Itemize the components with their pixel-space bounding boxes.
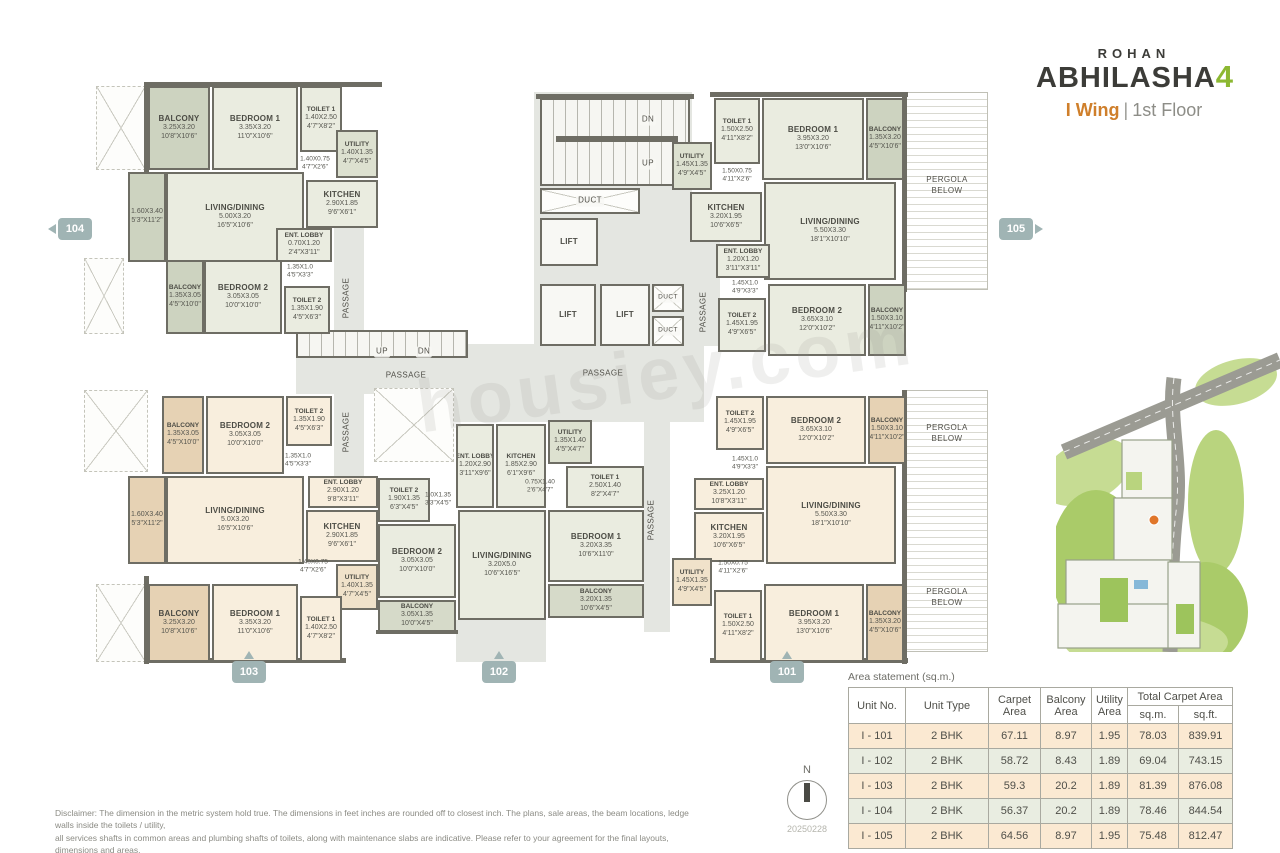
room-dim-feet: 9'8"X3'11": [327, 496, 358, 505]
plan-date: 20250228: [787, 824, 827, 834]
room-name: BALCONY: [159, 114, 200, 124]
table-cell: 2 BHK: [906, 724, 989, 749]
room-105-balcony-1: BALCONY1.35X3.204'5"X10'6": [866, 98, 904, 180]
room-name: BEDROOM 2: [791, 416, 841, 426]
room-dim-metric: 5.50X3.30: [814, 227, 846, 236]
room-name: TOILET 1: [723, 118, 751, 126]
room-dim-metric: 1.40X1.35: [341, 149, 373, 158]
room-dim-metric: 3.20X5.0: [488, 561, 516, 570]
room-dim-feet: 4'9"X4'5": [678, 586, 706, 595]
room-dim-feet: 18'1"X10'10": [811, 520, 851, 529]
room-dim-metric: 3.65X3.10: [801, 316, 833, 325]
room-105-bedroom-2: BEDROOM 23.65X3.1012'0"X10'2": [768, 284, 866, 356]
room-dim-feet: 10'8"X10'6": [161, 628, 197, 637]
room-dim-feet: 9'6"X6'1": [328, 209, 356, 218]
room-dim-metric: 5.00X3.20: [219, 213, 251, 222]
col-header-unit-no: Unit No.: [849, 688, 906, 724]
plan-label-up: UP: [374, 347, 390, 358]
room-102-living: LIVING/DINING3.20X5.010'6"X16'5": [458, 510, 546, 620]
room-name: TOILET 1: [591, 474, 619, 482]
room-name: LIVING/DINING: [472, 551, 532, 561]
zone-xbox: [374, 388, 454, 462]
dim-metric: 1.40X0.75: [298, 559, 328, 567]
plan-label-dn: DN: [640, 115, 656, 126]
room-name: TOILET 1: [724, 613, 752, 621]
room-name: UTILITY: [680, 153, 705, 161]
room-name: KITCHEN: [507, 453, 536, 461]
room-dim-feet: 11'0"X10'6": [237, 628, 272, 637]
room-dim-feet: 10'0"X4'5": [401, 620, 433, 629]
room-101-balcony-2: BALCONY1.50X3.104'11"X10'2": [868, 396, 906, 464]
room-102-utility: UTILITY1.35X1.404'5"X4'7": [548, 420, 592, 464]
room-105-toilet-1: TOILET 11.50X2.504'11"X8'2": [714, 98, 760, 164]
zone-xbox: [96, 584, 146, 662]
room-103-balcony-2: BALCONY1.35X3.054'5"X10'0": [162, 396, 204, 474]
room-dim-feet: 4'5"X10'0": [169, 301, 201, 310]
room-dim-feet: 8'2"X4'7": [591, 491, 619, 500]
room-102-bedroom-1: BEDROOM 13.20X3.3510'6"X11'0": [548, 510, 644, 582]
table-cell: 8.97: [1041, 724, 1092, 749]
room-dim-metric: 1.20X1.20: [727, 256, 759, 265]
room-104-balcony-1: BALCONY3.25X3.2010'8"X10'6": [148, 86, 210, 170]
room-103-bedroom-1: BEDROOM 13.35X3.2011'0"X10'6": [212, 584, 298, 662]
room-name: UTILITY: [680, 569, 705, 577]
room-name: TOILET 2: [293, 297, 321, 305]
room-dim-feet: 5'3"X11'2": [131, 217, 162, 226]
room-dim-metric: 3.05X3.05: [227, 293, 259, 302]
room-dim-metric: 2.50X1.40: [589, 482, 621, 491]
room-name: ENT. LOBBY: [710, 481, 749, 489]
room-lift-2: LIFT: [600, 284, 650, 346]
room-dim-metric: 1.50X3.10: [871, 315, 903, 324]
room-name: KITCHEN: [711, 523, 748, 533]
room-105-living: LIVING/DINING5.50X3.3018'1"X10'10": [764, 182, 896, 280]
plan-label-passage: PASSAGE: [647, 500, 658, 540]
table-cell: 743.15: [1179, 749, 1233, 774]
room-dim-metric: 1.35X3.05: [167, 430, 199, 439]
room-dim-feet: 13'0"X10'6": [795, 144, 831, 153]
room-dim-metric: 1.45X1.95: [724, 418, 756, 427]
table-row: I - 1032 BHK59.320.21.8981.39876.08: [849, 774, 1233, 799]
room-dim-metric: 3.25X3.20: [163, 619, 195, 628]
room-dim-metric: 1.90X1.35: [388, 495, 420, 504]
room-name: LIFT: [559, 310, 577, 320]
table-cell: 1.89: [1092, 774, 1128, 799]
room-dim-feet: 9'6"X6'1": [328, 541, 356, 550]
room-dim-metric: 1.35X3.05: [169, 292, 201, 301]
room-dim-metric: 3.20X1.35: [580, 596, 612, 605]
room-101-balcony-1: BALCONY1.35X3.204'5"X10'6": [866, 584, 904, 662]
room-102-balcony-left: BALCONY3.05X1.3510'0"X4'5": [378, 600, 456, 632]
room-dim-feet: 16'5"X10'6": [217, 222, 253, 231]
room-name: KITCHEN: [324, 522, 361, 532]
room-dim-feet: 10'6"X16'5": [484, 570, 520, 579]
room-102-toilet-1: TOILET 12.50X1.408'2"X4'7": [566, 466, 644, 508]
room-dim-feet: 2'4"X3'11": [288, 249, 319, 258]
dimension-label: 1.40X0.754'7"X2'6": [300, 156, 330, 173]
room-dim-feet: 4'11"X8'2": [722, 630, 753, 639]
table-cell: 2 BHK: [906, 799, 989, 824]
plan-label-up: UP: [640, 159, 656, 170]
table-cell: 839.91: [1179, 724, 1233, 749]
room-name: BALCONY: [167, 422, 199, 430]
room-104-utility: UTILITY1.40X1.354'7"X4'5": [336, 130, 378, 178]
dimension-label: 1.0X1.353'3"X4'5": [425, 492, 451, 509]
room-103-living: LIVING/DINING5.0X3.2016'5"X10'6": [166, 476, 304, 564]
north-label: N: [803, 764, 811, 776]
room-name: BEDROOM 1: [788, 125, 838, 135]
room-name: BALCONY: [169, 284, 201, 292]
room-name: LIVING/DINING: [205, 506, 265, 516]
dimension-label: 0.75X1.402'6"X4'7": [525, 479, 555, 496]
room-name: ENT. LOBBY: [324, 479, 363, 487]
room-101-utility: UTILITY1.45X1.354'9"X4'5": [672, 558, 712, 606]
room-name: BALCONY: [869, 610, 901, 618]
room-name: LIVING/DINING: [800, 217, 860, 227]
room-dim-feet: 4'11"X10'2": [869, 434, 904, 443]
room-dim-feet: 4'5"X4'7": [556, 446, 584, 455]
table-cell: 2 BHK: [906, 774, 989, 799]
room-dim-metric: 3.20X1.95: [713, 533, 745, 542]
dim-metric: 1.35X1.0: [287, 264, 313, 272]
room-105-bedroom-1: BEDROOM 13.95X3.2013'0"X10'6": [762, 98, 864, 180]
room-name: KITCHEN: [324, 190, 361, 200]
site-marker: [1149, 515, 1159, 525]
wing-floor-subtitle: I Wing|1st Floor: [1036, 100, 1232, 121]
room-104-ent-lobby: ENT. LOBBY0.70X1.202'4"X3'11": [276, 228, 332, 262]
table-cell: I - 101: [849, 724, 906, 749]
table-cell: 20.2: [1041, 774, 1092, 799]
table-cell: 2 BHK: [906, 749, 989, 774]
table-row: I - 1042 BHK56.3720.21.8978.46844.54: [849, 799, 1233, 824]
brand-line2: ABHILASHA4: [1036, 61, 1232, 94]
col-header-sqm: sq.m.: [1128, 706, 1179, 724]
plan-label-pergola: PERGOLA BELOW: [926, 175, 967, 197]
room-105-utility: UTILITY1.45X1.354'9"X4'5": [672, 142, 712, 190]
dim-feet: 3'3"X4'5": [425, 500, 451, 508]
dimension-label: 1.40X0.754'7"X2'6": [298, 559, 328, 576]
room-103-toilet-1: TOILET 11.40X2.504'7"X8'2": [300, 596, 342, 662]
room-dim-feet: 4'9"X6'5": [726, 427, 754, 436]
dim-feet: 4'11"X2'6": [722, 176, 752, 184]
table-cell: I - 105: [849, 824, 906, 849]
north-arrow-needle: [804, 783, 810, 802]
room-104-toilet-2: TOILET 21.35X1.904'5"X6'3": [284, 286, 330, 334]
room-dim-feet: 13'0"X10'6": [796, 628, 832, 637]
room-name: BEDROOM 1: [789, 609, 839, 619]
wall-segment: [556, 136, 678, 142]
room-name: UTILITY: [345, 574, 370, 582]
unit-badge-103: 103: [232, 661, 266, 683]
room-101-bedroom-2: BEDROOM 23.65X3.1012'0"X10'2": [766, 396, 866, 464]
room-dim-feet: 12'0"X10'2": [798, 435, 834, 444]
room-103-bedroom-2: BEDROOM 23.05X3.0510'0"X10'0": [206, 396, 284, 474]
wall-segment: [536, 94, 694, 99]
room-101-kitchen: KITCHEN3.20X1.9510'6"X6'5": [694, 512, 764, 562]
dimension-label: 1.35X1.04'5"X3'3": [287, 264, 313, 281]
table-cell: 56.37: [989, 799, 1041, 824]
area-table: Unit No. Unit Type Carpet Area Balcony A…: [848, 687, 1233, 849]
room-102-toilet-2: TOILET 21.90X1.356'3"X4'5": [378, 478, 430, 522]
table-cell: 78.03: [1128, 724, 1179, 749]
room-102-bedroom-2: BEDROOM 23.05X3.0510'0"X10'0": [378, 524, 456, 598]
room-104-bedroom-2: BEDROOM 23.05X3.0510'0"X10'0": [204, 260, 282, 334]
dim-metric: 1.35X1.0: [285, 453, 311, 461]
room-102-ent-lobby: ENT. LOBBY1.20X2.903'11"X9'6": [456, 424, 494, 508]
room-name: BEDROOM 1: [230, 114, 280, 124]
room-dim-feet: 12'0"X10'2": [799, 325, 835, 334]
room-dim-feet: 18'1"X10'10": [810, 236, 850, 245]
table-cell: 8.97: [1041, 824, 1092, 849]
room-dim-feet: 4'7"X4'5": [343, 158, 371, 167]
room-name: BEDROOM 2: [218, 283, 268, 293]
room-dim-metric: 3.35X3.20: [239, 619, 271, 628]
brand-logo: ROHAN ABHILASHA4 I Wing|1st Floor: [1036, 46, 1232, 121]
disclaimer-line2: all services shafts in common areas and …: [55, 833, 669, 853]
dim-feet: 4'11"X2'6": [718, 568, 748, 576]
dim-feet: 4'9"X3'3": [732, 464, 758, 472]
zone-xbox: [96, 86, 146, 170]
room-dim-metric: 1.35X1.90: [293, 416, 325, 425]
room-dim-metric: 1.35X3.20: [869, 134, 901, 143]
room-dim-feet: 4'7"X4'5": [343, 591, 371, 600]
room-dim-metric: 3.35X3.20: [239, 124, 271, 133]
table-row: I - 1052 BHK64.568.971.9575.48812.47: [849, 824, 1233, 849]
room-dim-metric: 1.40X2.50: [305, 624, 337, 633]
wall-segment: [710, 92, 908, 97]
room-101-bedroom-1: BEDROOM 13.95X3.2013'0"X10'6": [764, 584, 864, 662]
room-dim-feet: 3'11"X9'6": [459, 470, 490, 479]
table-cell: I - 103: [849, 774, 906, 799]
unit-badge-arrow-102: [494, 651, 504, 659]
room-dim-metric: 1.45X1.35: [676, 161, 708, 170]
room-dim-metric: 3.05X3.05: [401, 557, 433, 566]
table-cell: I - 104: [849, 799, 906, 824]
room-name: BALCONY: [869, 126, 901, 134]
room-dim-metric: 1.45X1.95: [726, 320, 758, 329]
room-name: TOILET 2: [726, 410, 754, 418]
room-105-ent-lobby: ENT. LOBBY1.20X1.203'11"X3'11": [716, 244, 770, 278]
room-dim-feet: 4'5"X6'3": [295, 425, 323, 434]
brand-line1: ROHAN: [1036, 46, 1232, 61]
zone-xbox: [84, 390, 148, 472]
plan-label-passage: PASSAGE: [342, 412, 353, 452]
plan-label-duct: DUCT: [576, 196, 604, 207]
room-105-toilet-2: TOILET 21.45X1.954'9"X6'5": [718, 298, 766, 352]
room-dim-metric: 1.40X1.35: [341, 582, 373, 591]
table-cell: 1.89: [1092, 749, 1128, 774]
room-name: BEDROOM 2: [220, 421, 270, 431]
room-name: ENT. LOBBY: [724, 248, 763, 256]
room-dim-metric: 2.90X1.85: [326, 532, 358, 541]
room-dim-metric: 1.35X1.90: [291, 305, 323, 314]
table-row: I - 1022 BHK58.728.431.8969.04743.15: [849, 749, 1233, 774]
room-dim-feet: 11'0"X10'6": [237, 133, 272, 142]
floor-label: 1st Floor: [1132, 100, 1202, 120]
room-104-bedroom-1: BEDROOM 13.35X3.2011'0"X10'6": [212, 86, 298, 170]
dim-feet: 2'6"X4'7": [525, 487, 555, 495]
room-dim-metric: 1.20X2.90: [459, 461, 491, 470]
room-105-kitchen: KITCHEN3.20X1.9510'6"X6'5": [690, 192, 762, 242]
room-dim-feet: 3'11"X3'11": [726, 265, 761, 274]
room-dim-feet: 10'8"X3'11": [711, 498, 746, 507]
unit-badge-arrow-104: [48, 224, 56, 234]
room-102-balcony-right: BALCONY3.20X1.3510'6"X4'5": [548, 584, 644, 618]
room-name: BEDROOM 2: [792, 306, 842, 316]
zone-gray: [452, 344, 704, 422]
plan-label-passage: PASSAGE: [342, 278, 353, 318]
table-cell: 75.48: [1128, 824, 1179, 849]
plan-label-pergola: PERGOLA BELOW: [926, 587, 967, 609]
room-dim-metric: 3.65X3.10: [800, 426, 832, 435]
col-header-sqft: sq.ft.: [1179, 706, 1233, 724]
room-dim-metric: 3.95X3.20: [798, 619, 830, 628]
table-cell: 59.3: [989, 774, 1041, 799]
col-header-total-carpet-area: Total Carpet Area: [1128, 688, 1233, 706]
col-header-balcony-area: Balcony Area: [1041, 688, 1092, 724]
wing-label: I Wing: [1066, 100, 1120, 120]
room-dim-metric: 3.95X3.20: [797, 135, 829, 144]
room-dim-feet: 4'11"X8'2": [721, 135, 752, 144]
room-dim-feet: 10'0"X10'0": [399, 566, 435, 575]
room-name: LIFT: [616, 310, 634, 320]
room-dim-metric: 1.50X3.10: [871, 425, 903, 434]
table-cell: 20.2: [1041, 799, 1092, 824]
room-name: ENT. LOBBY: [456, 453, 494, 461]
plan-label-passage: PASSAGE: [386, 371, 426, 382]
room-dim-feet: 4'9"X4'5": [678, 170, 706, 179]
plan-label-dn: DN: [416, 347, 432, 358]
dim-metric: 1.45X1.0: [732, 280, 758, 288]
plan-label-duct: DUCT: [656, 294, 680, 303]
room-dim-feet: 10'6"X6'5": [710, 222, 742, 231]
col-header-carpet-area: Carpet Area: [989, 688, 1041, 724]
dim-metric: 1.40X0.75: [300, 156, 330, 164]
room-lift-1: LIFT: [540, 284, 596, 346]
room-name: TOILET 1: [307, 106, 335, 114]
room-dim-feet: 6'1"X9'6": [507, 470, 535, 479]
table-cell: 812.47: [1179, 824, 1233, 849]
room-name: BEDROOM 2: [392, 547, 442, 557]
room-dim-feet: 16'5"X10'6": [217, 525, 253, 534]
dimension-label: 1.45X1.04'9"X3'3": [732, 280, 758, 297]
room-dim-feet: 10'6"X4'5": [580, 605, 612, 614]
room-104-balcony-2: BALCONY1.35X3.054'5"X10'0": [166, 260, 204, 334]
room-name: UTILITY: [345, 141, 370, 149]
room-dim-metric: 3.25X1.20: [713, 489, 745, 498]
dim-feet: 4'5"X3'3": [285, 461, 311, 469]
room-dim-feet: 4'11"X10'2": [869, 324, 904, 333]
room-105-balcony-2: BALCONY1.50X3.104'11"X10'2": [868, 284, 906, 356]
room-dim-metric: 1.85X2.90: [505, 461, 537, 470]
dimension-label: 1.45X1.04'9"X3'3": [732, 456, 758, 473]
room-name: BALCONY: [871, 417, 903, 425]
room-dim-feet: 4'7"X8'2": [307, 123, 335, 132]
room-101-living: LIVING/DINING5.50X3.3018'1"X10'10": [766, 466, 896, 564]
room-name: UTILITY: [558, 429, 583, 437]
room-dim-feet: 10'8"X10'6": [161, 133, 197, 142]
room-dim-feet: 4'7"X8'2": [307, 633, 335, 642]
room-103-toilet-2: TOILET 21.35X1.904'5"X6'3": [286, 396, 332, 446]
room-103-balcony-1: BALCONY3.25X3.2010'8"X10'6": [148, 584, 210, 662]
dimension-label: 1.50X0.754'11"X2'6": [718, 560, 748, 577]
room-dim-metric: 2.90X1.85: [326, 200, 358, 209]
table-cell: 81.39: [1128, 774, 1179, 799]
plan-label-duct: DUCT: [656, 327, 680, 336]
room-103-deck: 1.60X3.405'3"X11'2": [128, 476, 166, 564]
zone-stairs: [540, 98, 690, 186]
area-statement-title: Area statement (sq.m.): [848, 671, 955, 683]
room-dim-metric: 3.25X3.20: [163, 124, 195, 133]
unit-badge-arrow-103: [244, 651, 254, 659]
room-dim-metric: 1.35X3.20: [869, 618, 901, 627]
dim-feet: 4'7"X2'6": [300, 164, 330, 172]
room-name: BALCONY: [159, 609, 200, 619]
room-name: BALCONY: [871, 307, 903, 315]
dimension-label: 1.50X0.754'11"X2'6": [722, 168, 752, 185]
room-dim-metric: 3.05X1.35: [401, 611, 433, 620]
unit-badge-102: 102: [482, 661, 516, 683]
room-dim-feet: 10'0"X10'0": [227, 440, 263, 449]
col-header-utility-area: Utility Area: [1092, 688, 1128, 724]
table-cell: 1.95: [1092, 824, 1128, 849]
room-name: BALCONY: [401, 603, 433, 611]
room-name: TOILET 1: [307, 616, 335, 624]
room-dim-feet: 4'5"X6'3": [293, 314, 321, 323]
table-row: I - 1012 BHK67.118.971.9578.03839.91: [849, 724, 1233, 749]
room-name: LIFT: [560, 237, 578, 247]
table-cell: I - 102: [849, 749, 906, 774]
room-name: BEDROOM 1: [571, 532, 621, 542]
room-101-toilet-1: TOILET 11.50X2.504'11"X8'2": [714, 590, 762, 662]
room-dim-feet: 10'6"X11'0": [578, 551, 613, 560]
room-name: TOILET 2: [728, 312, 756, 320]
room-104-kitchen: KITCHEN2.90X1.859'6"X6'1": [306, 180, 378, 228]
dim-metric: 1.0X1.35: [425, 492, 451, 500]
dim-metric: 1.45X1.0: [732, 456, 758, 464]
plan-label-pergola: PERGOLA BELOW: [926, 423, 967, 445]
room-name: LIVING/DINING: [801, 501, 861, 511]
room-dim-metric: 1.60X3.40: [131, 208, 163, 217]
room-101-ent-lobby: ENT. LOBBY3.25X1.2010'8"X3'11": [694, 478, 764, 510]
table-cell: 1.95: [1092, 724, 1128, 749]
room-dim-feet: 4'5"X10'6": [869, 627, 901, 636]
table-cell: 844.54: [1179, 799, 1233, 824]
disclaimer-text: Disclaimer: The dimension in the metric …: [55, 807, 695, 853]
table-cell: 78.46: [1128, 799, 1179, 824]
zone-xbox: [84, 258, 124, 334]
table-cell: 64.56: [989, 824, 1041, 849]
unit-badge-105: 105: [999, 218, 1033, 240]
room-dim-feet: 6'3"X4'5": [390, 504, 418, 513]
table-cell: 1.89: [1092, 799, 1128, 824]
dim-metric: 1.50X0.75: [722, 168, 752, 176]
room-dim-metric: 5.50X3.30: [815, 511, 847, 520]
unit-badge-arrow-101: [782, 651, 792, 659]
dim-feet: 4'7"X2'6": [298, 567, 328, 575]
room-101-toilet-2: TOILET 21.45X1.954'9"X6'5": [716, 396, 764, 450]
room-103-utility: UTILITY1.40X1.354'7"X4'5": [336, 564, 378, 610]
room-dim-metric: 1.50X2.50: [722, 621, 754, 630]
room-dim-metric: 3.05X3.05: [229, 431, 261, 440]
table-cell: 2 BHK: [906, 824, 989, 849]
brand-number: 4: [1216, 59, 1234, 94]
room-dim-metric: 3.20X1.95: [710, 213, 742, 222]
col-header-unit-type: Unit Type: [906, 688, 989, 724]
room-dim-metric: 2.90X1.20: [327, 487, 359, 496]
room-lift-top: LIFT: [540, 218, 598, 266]
table-cell: 58.72: [989, 749, 1041, 774]
